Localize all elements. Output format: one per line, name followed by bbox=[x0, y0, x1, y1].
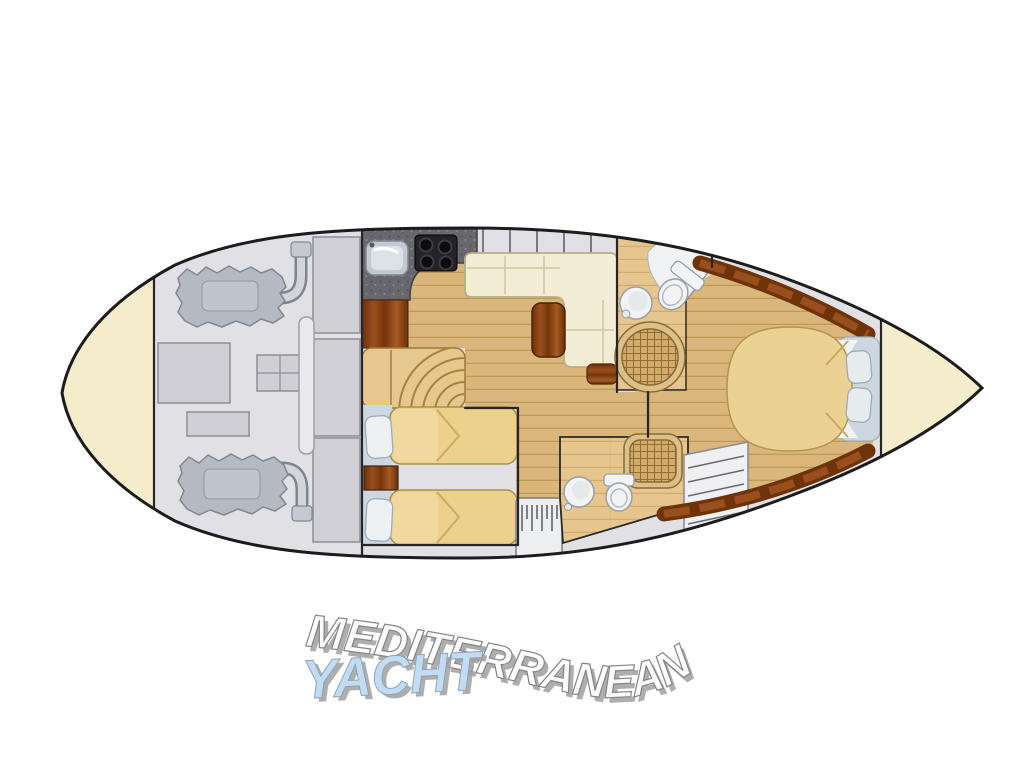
yacht-floorplan-image: MEDITERRANEAN MEDITERRANEAN YACHT YACHT bbox=[0, 0, 1024, 768]
watermark-line2: YACHT bbox=[301, 639, 486, 710]
switch-box bbox=[257, 355, 303, 391]
storage-locker bbox=[313, 339, 360, 436]
nightstand bbox=[364, 466, 398, 490]
handrail bbox=[299, 317, 314, 454]
engine-room bbox=[158, 237, 360, 542]
stove-icon bbox=[415, 235, 457, 271]
island-double-bed bbox=[727, 327, 852, 451]
pillow bbox=[846, 387, 873, 423]
toilet-icon bbox=[604, 474, 634, 511]
pillow bbox=[846, 350, 873, 384]
sink-icon bbox=[366, 241, 408, 275]
master-cabin-bed bbox=[727, 327, 880, 451]
storage-locker bbox=[313, 237, 360, 333]
galley-cabinet bbox=[362, 300, 408, 348]
port-engine-icon bbox=[176, 266, 286, 327]
starboard-engine-icon bbox=[178, 454, 288, 515]
tank bbox=[158, 343, 230, 403]
pillow bbox=[365, 415, 394, 459]
storage-locker bbox=[313, 438, 360, 542]
footstool bbox=[587, 364, 617, 384]
twin-bed-2 bbox=[390, 490, 517, 545]
twin-bed-1 bbox=[390, 407, 517, 464]
battery-box bbox=[187, 412, 249, 436]
yacht-floorplan-page: MEDITERRANEAN MEDITERRANEAN YACHT YACHT bbox=[0, 0, 1024, 768]
washbasin-icon bbox=[620, 287, 652, 319]
pillow bbox=[365, 498, 393, 541]
companionway-steps bbox=[516, 498, 562, 560]
curved-stairs bbox=[362, 346, 465, 412]
salon-table bbox=[532, 303, 565, 357]
round-shower-icon bbox=[615, 322, 685, 392]
